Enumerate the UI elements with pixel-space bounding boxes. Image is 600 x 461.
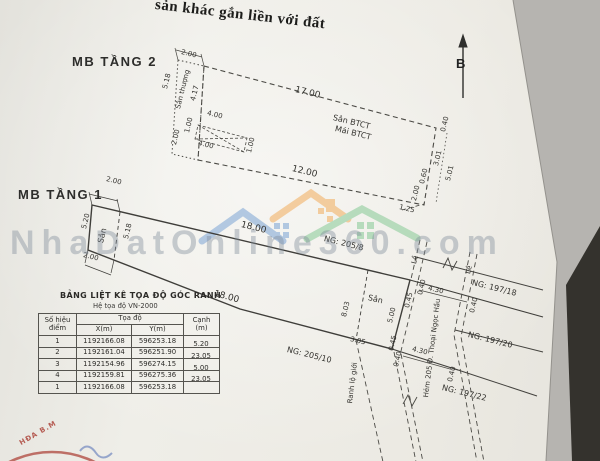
floor1-title: MB TẦNG 1 xyxy=(18,188,103,201)
col-header-y: Y(m) xyxy=(132,325,184,336)
edge-length-value: 23.05 xyxy=(184,375,218,383)
floor2-outline xyxy=(172,48,447,210)
col-header-x: X(m) xyxy=(77,325,132,336)
north-label: B xyxy=(456,56,465,71)
col-header-coord: Tọa độ xyxy=(77,314,184,325)
scanned-document-sheet: sản khác gắn liền với đất B MB TẦNG 2 MB… xyxy=(0,0,600,461)
edge-length-value: 5.20 xyxy=(184,340,218,348)
col-header-point: Số hiệuđiểm xyxy=(39,314,77,336)
table-subtitle: Hệ tọa độ VN-2000 xyxy=(93,302,158,310)
table-row: 11192166.08596253.18 xyxy=(39,382,220,394)
col-header-edge: Cạnh(m) xyxy=(184,314,220,336)
coordinate-table: Số hiệuđiểm Tọa độ Cạnh(m) X(m) Y(m) 111… xyxy=(38,313,219,392)
red-stamp-arc xyxy=(0,447,148,461)
edge-length-value: 5.00 xyxy=(184,364,218,372)
table-title: BẢNG LIỆT KÊ TỌA ĐỘ GÓC RANH xyxy=(60,291,221,300)
edge-length-value: 23.05 xyxy=(184,352,218,360)
blue-pen-mark xyxy=(80,447,112,458)
floor2-title: MB TẦNG 2 xyxy=(72,55,157,68)
watermark-text: NhaDatOnline360.com xyxy=(10,226,504,260)
